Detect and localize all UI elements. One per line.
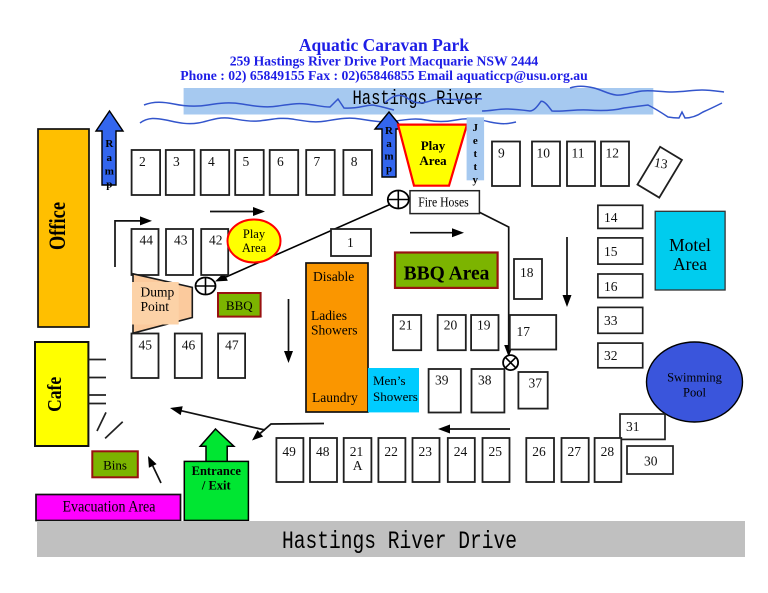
svg-text:m: m [384, 151, 393, 163]
svg-text:Point: Point [141, 299, 170, 314]
svg-text:a: a [386, 138, 392, 150]
svg-text:47: 47 [225, 338, 239, 353]
svg-text:37: 37 [529, 376, 543, 391]
svg-text:Area: Area [673, 254, 707, 274]
svg-text:a: a [107, 152, 113, 164]
svg-text:Ladies: Ladies [311, 308, 347, 323]
svg-text:Phone : 02) 65849155 Fax : 02): Phone : 02) 65849155 Fax : 02)65846855 E… [180, 68, 588, 84]
svg-text:BBQ: BBQ [226, 298, 253, 313]
svg-text:39: 39 [435, 373, 449, 388]
svg-text:Area: Area [242, 241, 267, 255]
svg-text:1: 1 [347, 235, 354, 250]
svg-text:7: 7 [314, 154, 321, 169]
svg-text:12: 12 [606, 146, 620, 161]
svg-text:A: A [353, 458, 363, 473]
svg-text:Play: Play [421, 138, 446, 153]
svg-text:23: 23 [419, 444, 433, 459]
svg-text:13: 13 [653, 155, 669, 172]
svg-text:8: 8 [351, 154, 358, 169]
svg-text:18: 18 [520, 265, 534, 280]
svg-text:9: 9 [498, 146, 505, 161]
svg-text:e: e [473, 135, 478, 147]
svg-text:2: 2 [139, 154, 146, 169]
svg-text:31: 31 [626, 419, 640, 434]
svg-text:Play: Play [243, 227, 266, 241]
svg-text:J: J [473, 122, 479, 134]
svg-text:BBQ Area: BBQ Area [404, 264, 490, 285]
svg-text:Entrance: Entrance [192, 464, 242, 478]
svg-text:19: 19 [477, 318, 491, 333]
svg-text:m: m [105, 166, 114, 178]
svg-text:14: 14 [604, 210, 618, 225]
svg-text:44: 44 [140, 233, 154, 248]
svg-text:Area: Area [419, 153, 447, 168]
svg-text:42: 42 [209, 233, 223, 248]
svg-text:Motel: Motel [669, 235, 711, 255]
svg-text:Dump: Dump [141, 285, 175, 300]
svg-text:Disable: Disable [313, 269, 354, 284]
svg-text:48: 48 [316, 444, 330, 459]
svg-text:21: 21 [350, 444, 364, 459]
svg-text:Evacuation Area: Evacuation Area [63, 499, 156, 516]
svg-text:4: 4 [208, 154, 215, 169]
svg-text:Hastings River Drive: Hastings River Drive [282, 527, 517, 556]
svg-text:21: 21 [399, 318, 413, 333]
svg-text:Cafe: Cafe [44, 377, 66, 412]
svg-text:t: t [473, 148, 477, 160]
svg-text:p: p [106, 179, 112, 191]
svg-text:p: p [386, 163, 392, 175]
svg-text:25: 25 [489, 444, 503, 459]
svg-text:11: 11 [572, 146, 585, 161]
svg-text:16: 16 [604, 279, 618, 294]
svg-text:Office: Office [45, 202, 70, 250]
svg-text:5: 5 [243, 154, 250, 169]
svg-text:t: t [473, 161, 477, 173]
svg-text:Pool: Pool [683, 386, 706, 400]
svg-text:43: 43 [174, 233, 188, 248]
svg-text:R: R [105, 138, 114, 150]
svg-text:6: 6 [277, 154, 284, 169]
svg-text:Aquatic Caravan Park: Aquatic Caravan Park [299, 35, 469, 55]
svg-text:46: 46 [182, 338, 196, 353]
svg-text:22: 22 [384, 444, 398, 459]
svg-text:259 Hastings River Drive Port: 259 Hastings River Drive Port Macquarie … [230, 54, 539, 69]
svg-text:45: 45 [139, 338, 153, 353]
svg-text:49: 49 [282, 444, 296, 459]
svg-text:32: 32 [604, 348, 618, 363]
svg-text:24: 24 [454, 444, 468, 459]
svg-text:Showers: Showers [373, 389, 418, 404]
svg-text:/ Exit: / Exit [201, 479, 232, 493]
svg-text:Swimming: Swimming [667, 371, 723, 385]
svg-text:Fire Hoses: Fire Hoses [418, 195, 469, 210]
svg-text:Bins: Bins [103, 458, 127, 473]
svg-text:Men’s: Men’s [373, 373, 406, 388]
svg-text:15: 15 [604, 244, 618, 259]
svg-text:26: 26 [532, 444, 546, 459]
svg-text:28: 28 [601, 444, 615, 459]
svg-text:Laundry: Laundry [312, 390, 358, 405]
svg-text:Showers: Showers [311, 323, 358, 338]
svg-text:27: 27 [568, 444, 582, 459]
svg-text:R: R [385, 125, 394, 137]
svg-text:y: y [473, 174, 479, 186]
svg-text:30: 30 [644, 454, 658, 469]
svg-text:3: 3 [173, 154, 180, 169]
svg-text:17: 17 [517, 324, 531, 339]
svg-text:20: 20 [444, 318, 458, 333]
svg-text:33: 33 [604, 313, 618, 328]
svg-text:10: 10 [537, 146, 551, 161]
svg-text:38: 38 [478, 373, 492, 388]
